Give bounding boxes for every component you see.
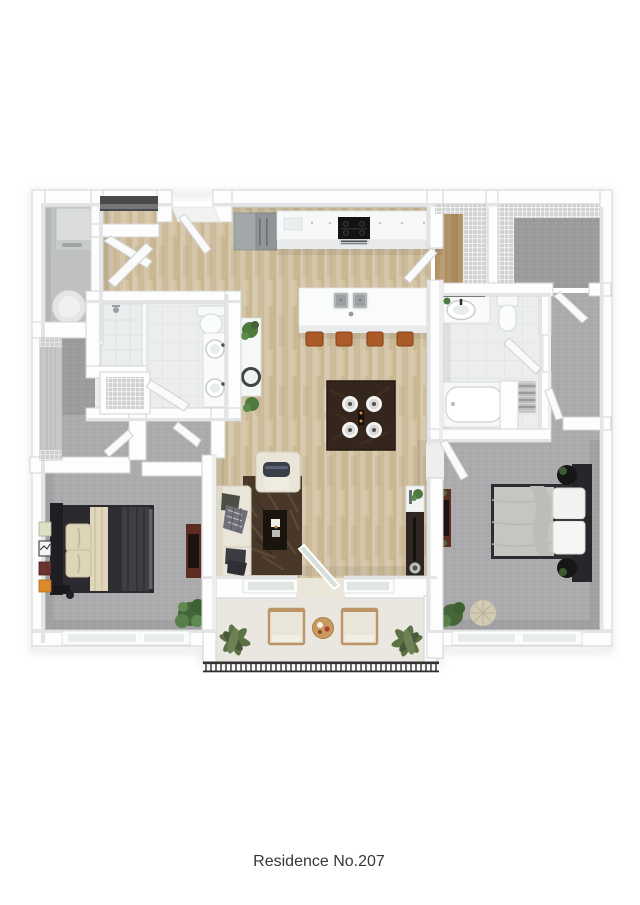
svg-text:Residence No.207: Residence No.207: [253, 853, 385, 870]
